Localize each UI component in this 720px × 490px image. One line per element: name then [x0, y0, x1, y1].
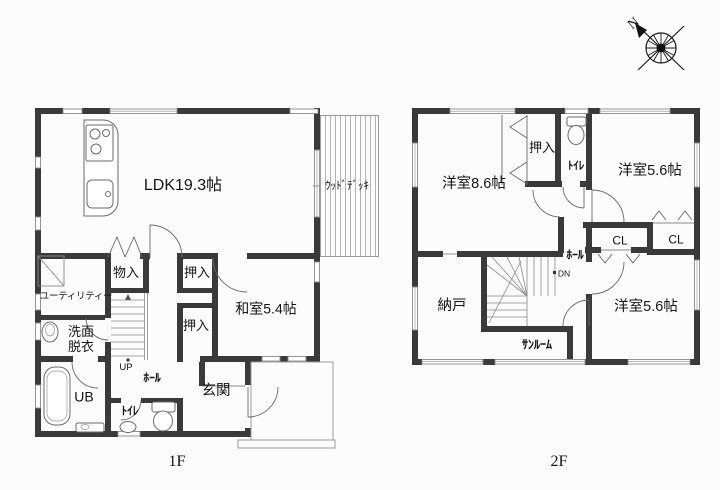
label-western-room-56-top: 洋室5.6帖 — [618, 164, 682, 180]
label-storage-1f: 物入 — [113, 266, 139, 280]
door-arcs — [72, 115, 692, 420]
toilet-1f-icon — [152, 402, 175, 412]
label-utility: ユーティリティー — [40, 292, 112, 302]
label-toilet-1f: ﾄｲﾚ — [121, 406, 138, 419]
label-stairs-up: UP — [119, 363, 132, 373]
label-cl-left: CL — [612, 234, 627, 247]
label-western-room-86: 洋室8.6帖 — [442, 177, 506, 193]
label-toilet-2f: ﾄｲﾚ — [568, 160, 585, 172]
label-washroom: 洗面脱衣 — [66, 324, 96, 354]
compass-rose-icon — [635, 23, 684, 70]
label-closet-bottom-1f: 押入 — [183, 319, 209, 333]
label-western-room-56-bottom: 洋室5.6帖 — [614, 300, 678, 316]
floor1-title: 1F — [169, 453, 186, 471]
label-wood-deck: ｳｯﾄﾞﾃﾞｯｷ — [325, 180, 369, 192]
label-ldk: LDK19.3帖 — [144, 177, 222, 195]
label-hall-1f: ﾎｰﾙ — [143, 373, 160, 386]
floor-plan-canvas: LDK19.3帖 ｳｯﾄﾞﾃﾞｯｷ 物入 押入 ユーティリティー 洗面脱衣 押入… — [0, 0, 720, 490]
stairs-1f — [111, 293, 148, 362]
label-stairs-down: DN — [558, 269, 570, 278]
label-closet-top-1f: 押入 — [184, 266, 210, 280]
porch-outline — [238, 362, 335, 448]
kitchen-sink-icon — [87, 180, 113, 208]
label-japanese-room: 和室5.4帖 — [235, 301, 296, 316]
label-hall-2f: ﾎｰﾙ — [566, 250, 583, 263]
floor2-walls — [412, 108, 700, 365]
toilet-2f-icon — [567, 117, 586, 126]
label-cl-right: CL — [668, 233, 683, 246]
floor2-title: 2F — [551, 453, 568, 471]
label-unit-bath: UB — [74, 389, 93, 404]
label-closet-2f: 押入 — [529, 141, 555, 155]
kitchen-fixtures — [84, 120, 118, 216]
label-storage-room: 納戸 — [438, 299, 467, 315]
label-sunroom: ｻﾝﾙｰﾑ — [522, 338, 552, 351]
washbasin-icon — [42, 322, 58, 342]
stairs-2f — [487, 257, 556, 326]
label-entrance: 玄関 — [202, 384, 231, 400]
